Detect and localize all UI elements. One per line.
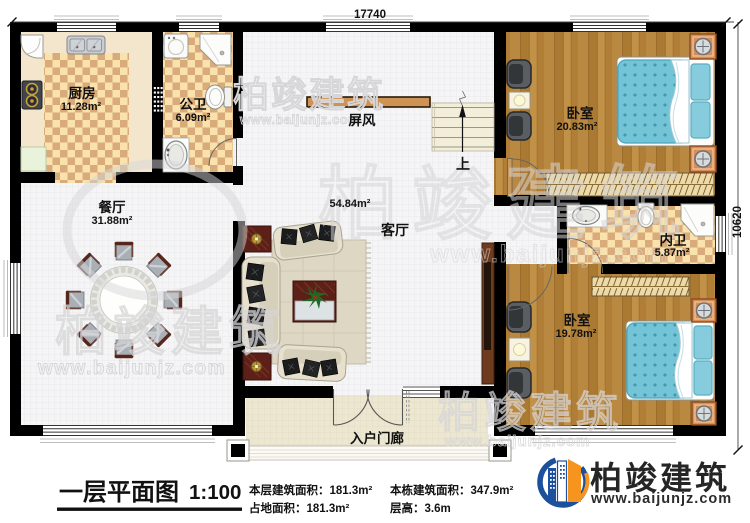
- svg-text:本层建筑面积：181.3m²: 本层建筑面积：181.3m²: [249, 483, 373, 497]
- svg-text:柏竣建筑: 柏竣建筑: [55, 304, 287, 362]
- svg-text:屏风: 屏风: [349, 113, 376, 128]
- svg-text:www.baijunjz.com: www.baijunjz.com: [239, 112, 360, 127]
- svg-text:20.83m²: 20.83m²: [557, 121, 598, 133]
- svg-text:1:100: 1:100: [189, 481, 241, 504]
- svg-text:公卫: 公卫: [180, 97, 207, 112]
- svg-text:5.87m²: 5.87m²: [655, 247, 690, 259]
- svg-text:本栋建筑面积：347.9m²: 本栋建筑面积：347.9m²: [390, 483, 514, 497]
- svg-text:www.baijunjz.com: www.baijunjz.com: [37, 358, 226, 379]
- svg-text:入户门廊: 入户门廊: [350, 430, 404, 446]
- svg-text:层高：3.6m: 层高：3.6m: [389, 501, 451, 515]
- svg-text:柏竣建筑: 柏竣建筑: [438, 389, 622, 436]
- svg-text:54.84m²: 54.84m²: [330, 198, 371, 210]
- svg-text:一层平面图: 一层平面图: [59, 479, 179, 506]
- svg-text:11.28m²: 11.28m²: [61, 101, 102, 113]
- svg-text:厨房: 厨房: [69, 85, 96, 101]
- svg-text:www.baijunjz.com: www.baijunjz.com: [429, 241, 669, 268]
- svg-text:柏竣建筑: 柏竣建筑: [318, 160, 694, 249]
- svg-text:餐厅: 餐厅: [98, 199, 126, 215]
- svg-text:10620: 10620: [732, 206, 744, 238]
- svg-text:上: 上: [456, 156, 470, 172]
- svg-text:17740: 17740: [354, 9, 386, 21]
- svg-text:19.78m²: 19.78m²: [556, 328, 597, 340]
- svg-text:内卫: 内卫: [660, 232, 688, 248]
- svg-text:客厅: 客厅: [380, 222, 409, 238]
- svg-text:31.88m²: 31.88m²: [92, 215, 133, 227]
- svg-text:卧室: 卧室: [567, 105, 595, 121]
- svg-text:柏竣建筑: 柏竣建筑: [233, 74, 385, 115]
- svg-text:卧室: 卧室: [564, 312, 592, 328]
- svg-text:www.baijunjz.com: www.baijunjz.com: [590, 491, 732, 507]
- svg-text:6.09m²: 6.09m²: [176, 112, 211, 124]
- svg-text:www.baijunjz.com: www.baijunjz.com: [444, 433, 590, 450]
- svg-text:占地面积：181.3m²: 占地面积：181.3m²: [249, 501, 350, 515]
